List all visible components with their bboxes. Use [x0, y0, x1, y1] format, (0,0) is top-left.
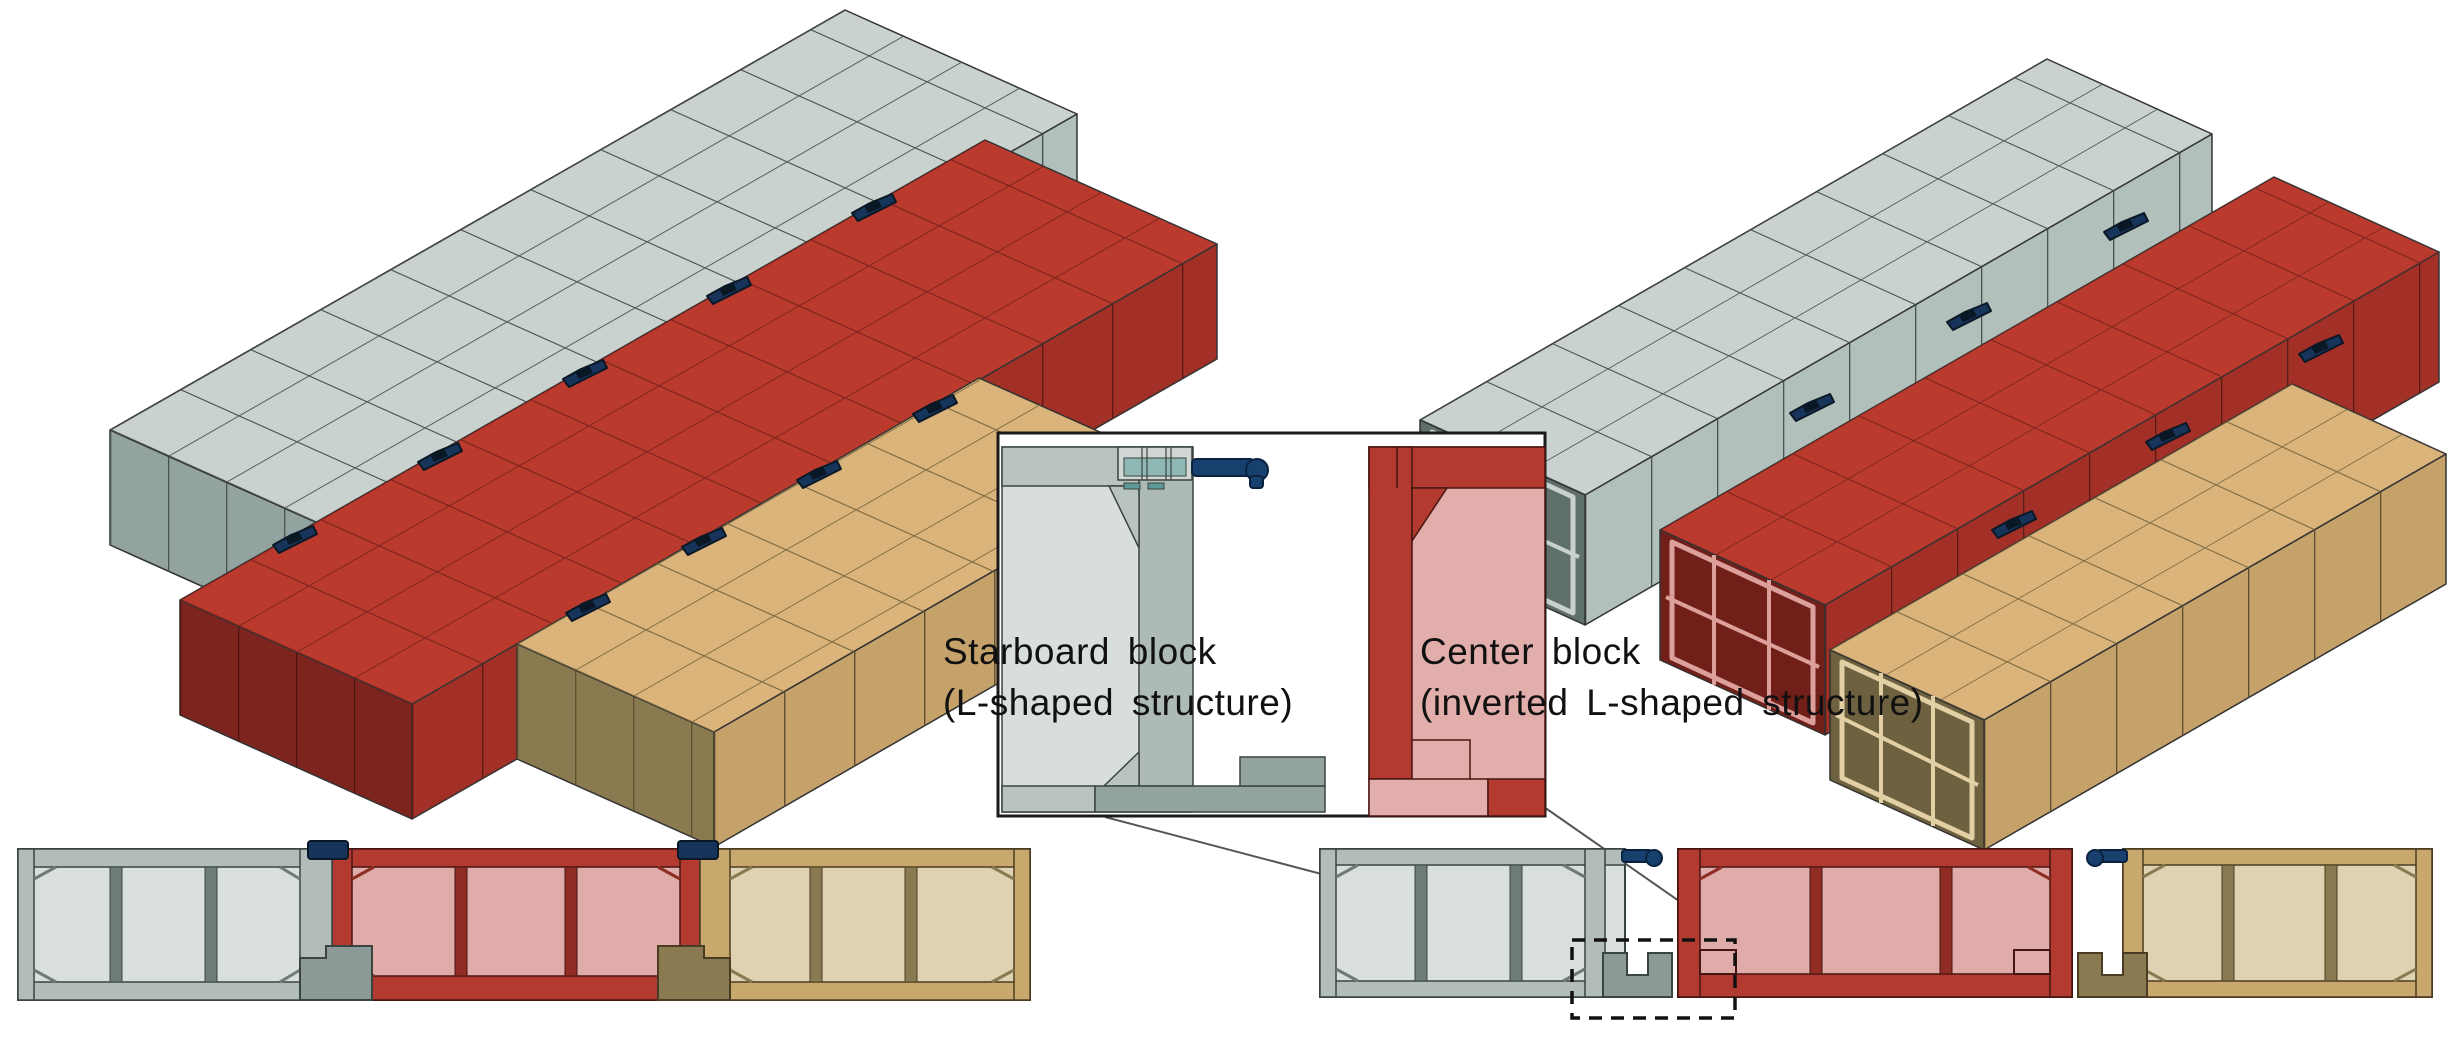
center-block-label-line1: Center block: [1420, 626, 1924, 677]
figure-canvas: Starboard block (L-shaped structure) Cen…: [0, 0, 2451, 1044]
clamp-icon: [308, 841, 348, 859]
exploded-isometric-view: [1420, 59, 2446, 850]
starboard-block-label: Starboard block (L-shaped structure): [943, 626, 1293, 728]
pin-icon: [1192, 459, 1254, 476]
center-block-label: Center block (inverted L-shaped structur…: [1420, 626, 1924, 728]
separated-starboard-section: [1320, 849, 1672, 997]
pin-icon: [1622, 850, 1662, 866]
starboard-block-label-line2: (L-shaped structure): [943, 677, 1293, 728]
center-block-label-line2: (inverted L-shaped structure): [1420, 677, 1924, 728]
joined-cross-section: [18, 841, 1030, 1000]
joined-port-section: [658, 849, 1030, 1000]
clamp-icon: [678, 841, 718, 859]
starboard-block-label-line1: Starboard block: [943, 626, 1293, 677]
diagram-svg: [0, 0, 2451, 1044]
pin-icon: [2087, 850, 2127, 866]
joined-starboard-section: [18, 849, 372, 1000]
starboard-l-foot: [1603, 953, 1672, 997]
center-foot-left: [1700, 950, 1736, 974]
center-foot-right: [2014, 950, 2050, 974]
separated-center-section: [1678, 849, 2072, 997]
detail-inset: [998, 433, 1545, 816]
pin-icon: [1250, 476, 1263, 488]
port-l-foot: [2078, 953, 2147, 997]
separated-port-section: [2078, 849, 2432, 997]
separated-cross-sections: [1105, 807, 2432, 1018]
joined-center-section: [332, 849, 700, 1000]
